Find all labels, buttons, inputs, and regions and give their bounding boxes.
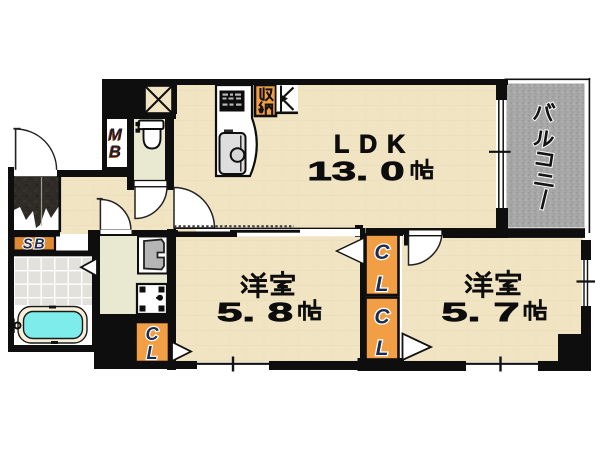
- svg-text:13. 0: 13. 0: [308, 158, 405, 186]
- svg-text:LDK: LDK: [334, 131, 405, 159]
- svg-text:5. 8: 5. 8: [217, 299, 293, 327]
- svg-text:B: B: [109, 143, 121, 161]
- svg-text:M: M: [108, 126, 123, 144]
- svg-text:L: L: [376, 273, 389, 296]
- svg-text:L: L: [147, 343, 158, 363]
- svg-text:SB: SB: [23, 237, 46, 253]
- svg-text:5. 7: 5. 7: [442, 299, 520, 327]
- svg-text:L: L: [376, 337, 389, 360]
- svg-text:C: C: [374, 306, 390, 329]
- svg-text:C: C: [146, 324, 160, 344]
- svg-text:C: C: [374, 241, 390, 264]
